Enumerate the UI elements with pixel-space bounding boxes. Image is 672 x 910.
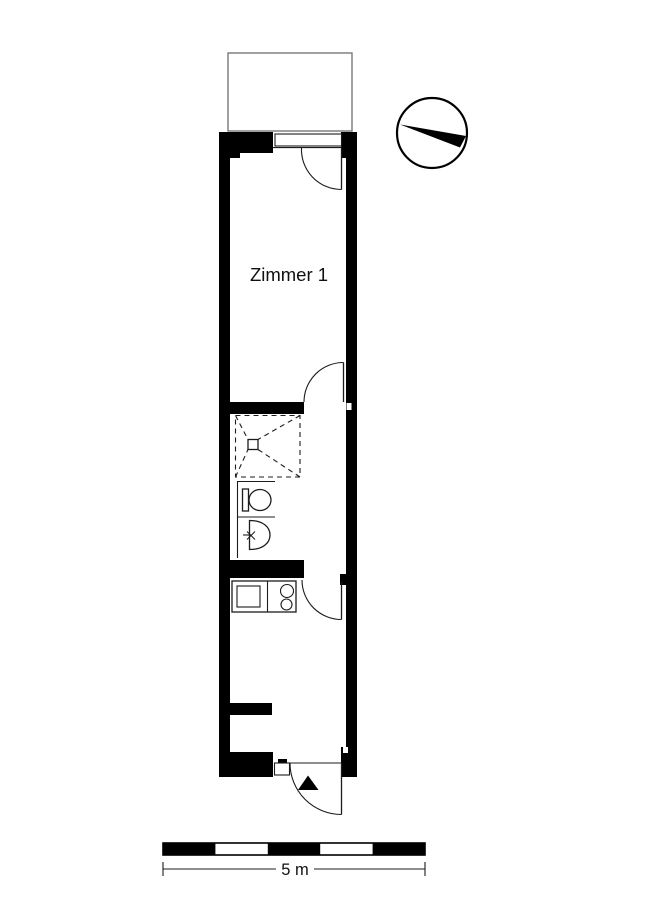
kitchen-fixtures [232, 581, 296, 612]
room-label: Zimmer 1 [250, 264, 328, 285]
shower-diagonal [236, 416, 249, 440]
kitchen-counter-icon [232, 581, 296, 612]
toilet-tank [243, 489, 249, 511]
wall-segment [219, 132, 230, 777]
washbasin-icon [243, 521, 270, 550]
shower-drain [248, 440, 258, 450]
scale-bar-segment [268, 843, 320, 855]
entrance-marker-icon [298, 776, 319, 791]
shower-diagonal [258, 450, 300, 478]
door-swing-arc [302, 580, 342, 620]
shower-icon [236, 416, 301, 478]
wall-segment [230, 132, 273, 153]
bathroom-fixtures [236, 416, 301, 559]
balcony-door [273, 134, 342, 190]
scale-label: 5 m [281, 861, 309, 879]
wall-joint-notch [343, 747, 348, 753]
door-frame [275, 763, 290, 775]
room-door [304, 363, 344, 403]
scale-bar-segment [163, 843, 215, 855]
window-frame [275, 134, 342, 146]
door-swing-arc [304, 363, 344, 403]
wall-segment [230, 703, 272, 715]
balcony-outline [228, 53, 352, 131]
scale-bar: 5 m [163, 843, 425, 879]
wall-segment [230, 560, 304, 578]
shower-diagonal [258, 416, 300, 440]
floorplan-svg: Zimmer 1 [0, 0, 672, 910]
wall-segment [219, 752, 273, 777]
toilet-icon [243, 489, 272, 511]
basin-bowl [250, 521, 271, 550]
wall-segment [278, 759, 287, 763]
scale-bar-segment [373, 843, 425, 855]
kitchen-door [302, 580, 342, 620]
toilet-bowl [249, 490, 271, 511]
entrance-door [275, 763, 342, 815]
door-swing-arc [301, 148, 341, 190]
wall-segment [230, 153, 240, 158]
north-arrow-icon [397, 98, 467, 168]
shower-diagonal [236, 450, 249, 478]
shower-outline [236, 416, 301, 478]
wall-joint-notch [347, 403, 352, 410]
floorplan-page: Zimmer 1 [0, 0, 672, 910]
wall-segment [230, 402, 304, 414]
wall-segment [341, 132, 357, 158]
wall-segment [346, 158, 357, 747]
walls [219, 132, 357, 777]
